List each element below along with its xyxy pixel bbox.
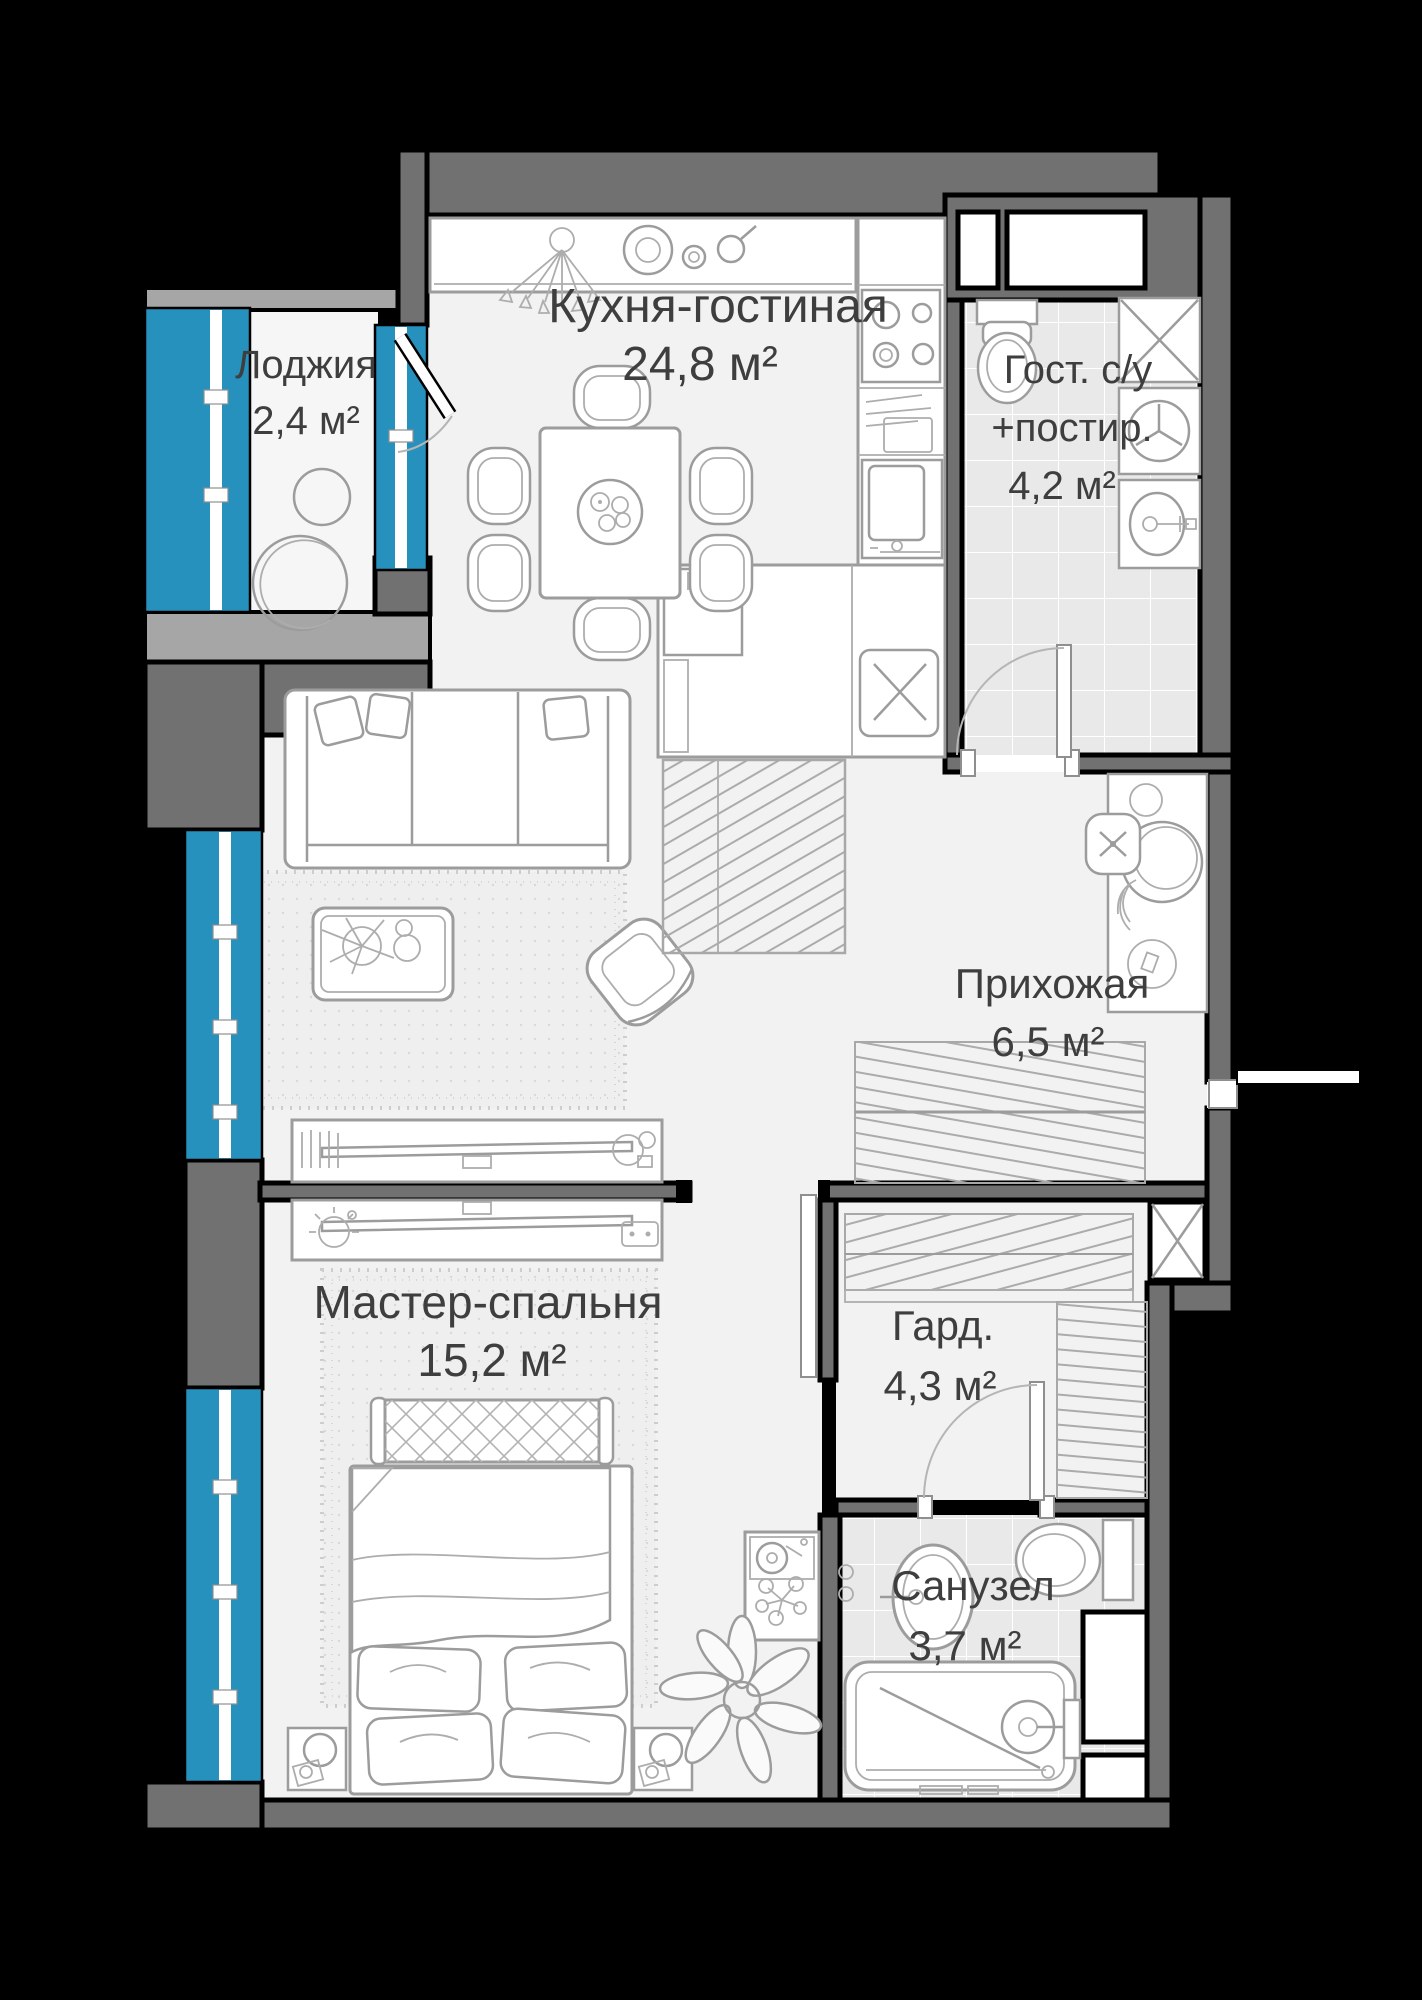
guest-bath-label: Гост. с/у bbox=[1004, 348, 1152, 392]
dining-chair bbox=[690, 448, 752, 524]
nightstand-left bbox=[288, 1728, 346, 1790]
wardrobe-rack-right bbox=[1057, 1302, 1147, 1498]
loggia-label: Лоджия bbox=[235, 343, 377, 387]
left-pier-upper bbox=[145, 662, 262, 830]
shaft-bathroom-small bbox=[1083, 1755, 1147, 1800]
bathroom-west-wall bbox=[820, 1515, 840, 1800]
left-pier-mid bbox=[185, 1160, 262, 1388]
master-bedroom-label: Мастер-спальня bbox=[313, 1276, 662, 1328]
tv-console-living-side bbox=[292, 1120, 662, 1182]
pillow bbox=[366, 1713, 493, 1785]
bedroom-pocket-door bbox=[801, 1195, 816, 1377]
loggia-bottom-wall bbox=[145, 612, 430, 662]
bathroom-top-wall-right bbox=[1040, 1500, 1147, 1515]
floor-plan-page: Лоджия 2,4 м² Кухня-гостиная 24,8 м² Гос… bbox=[0, 0, 1422, 2000]
dining-chair bbox=[468, 448, 530, 524]
nightstand-right bbox=[634, 1728, 692, 1790]
living-room-window bbox=[185, 830, 262, 1160]
kitchen-east-counter bbox=[858, 218, 945, 565]
bed-bench bbox=[371, 1398, 613, 1464]
tv-wall-end-cap bbox=[676, 1180, 692, 1203]
pillow bbox=[357, 1646, 481, 1712]
master-bedroom-area: 15,2 м² bbox=[417, 1334, 566, 1386]
dining-chair bbox=[468, 535, 530, 611]
right-wall-upper bbox=[1200, 195, 1233, 772]
dining-chair bbox=[574, 598, 650, 660]
hallway-label: Прихожая bbox=[955, 960, 1150, 1007]
hall-stool bbox=[1086, 814, 1140, 874]
shaft-bathroom-large bbox=[1083, 1612, 1147, 1742]
wardrobe-area: 4,3 м² bbox=[884, 1362, 997, 1409]
guest-bath-west-wall bbox=[945, 300, 962, 772]
bathroom-top-wall-left bbox=[836, 1500, 930, 1515]
bathroom-area: 3,7 м² bbox=[909, 1622, 1022, 1669]
guest-sink-icon bbox=[1119, 480, 1200, 568]
hallway-wardrobe-wall bbox=[822, 1183, 1207, 1200]
dining-chair bbox=[690, 535, 752, 611]
entrance-door-leaf bbox=[1237, 1070, 1360, 1084]
kitchen-west-wall bbox=[398, 150, 427, 325]
shaft-top-wide bbox=[1007, 212, 1145, 288]
right-wall-lower bbox=[1147, 1283, 1172, 1830]
floor-plan: Лоджия 2,4 м² Кухня-гостиная 24,8 м² Гос… bbox=[0, 0, 1422, 2000]
bathtub bbox=[845, 1662, 1080, 1794]
loggia-area: 2,4 м² bbox=[252, 399, 360, 443]
bedroom-window bbox=[185, 1388, 262, 1782]
loggia-top-wall bbox=[145, 288, 427, 310]
dresser bbox=[745, 1532, 819, 1640]
duvet bbox=[352, 1468, 610, 1652]
pillow bbox=[500, 1708, 626, 1784]
shaft-wardrobe bbox=[1150, 1202, 1205, 1280]
shaft-top-small bbox=[958, 212, 998, 288]
right-wall-step bbox=[1172, 1283, 1233, 1313]
tv-partition-wall bbox=[260, 1183, 690, 1200]
tv-console-bedroom-side bbox=[292, 1200, 662, 1260]
dining-table bbox=[540, 428, 680, 598]
right-wall-hall-lower bbox=[1207, 1108, 1233, 1283]
guest-bath-label-2: +постир. bbox=[991, 406, 1152, 450]
kitchen-living-label: Кухня-гостиная bbox=[548, 280, 888, 333]
wardrobe-west-wall bbox=[820, 1200, 836, 1380]
kitchen-living-area: 24,8 м² bbox=[622, 338, 778, 391]
wardrobe-rack-top bbox=[845, 1214, 1133, 1290]
bottom-wall bbox=[145, 1800, 1172, 1830]
pillow bbox=[504, 1642, 627, 1712]
bathroom-label: Санузел bbox=[891, 1562, 1055, 1609]
coffee-table bbox=[313, 908, 453, 1000]
hall-closet bbox=[663, 760, 845, 953]
sofa bbox=[285, 690, 630, 868]
bed bbox=[350, 1466, 632, 1794]
guest-bath-area: 4,2 м² bbox=[1008, 464, 1116, 508]
guest-bath-bottom-wall-right bbox=[1067, 755, 1233, 772]
bottom-left-corner-wall bbox=[145, 1782, 262, 1830]
right-wall-hall-upper bbox=[1207, 772, 1233, 1082]
hallway-area: 6,5 м² bbox=[992, 1018, 1105, 1065]
wardrobe-label: Гард. bbox=[892, 1302, 994, 1349]
